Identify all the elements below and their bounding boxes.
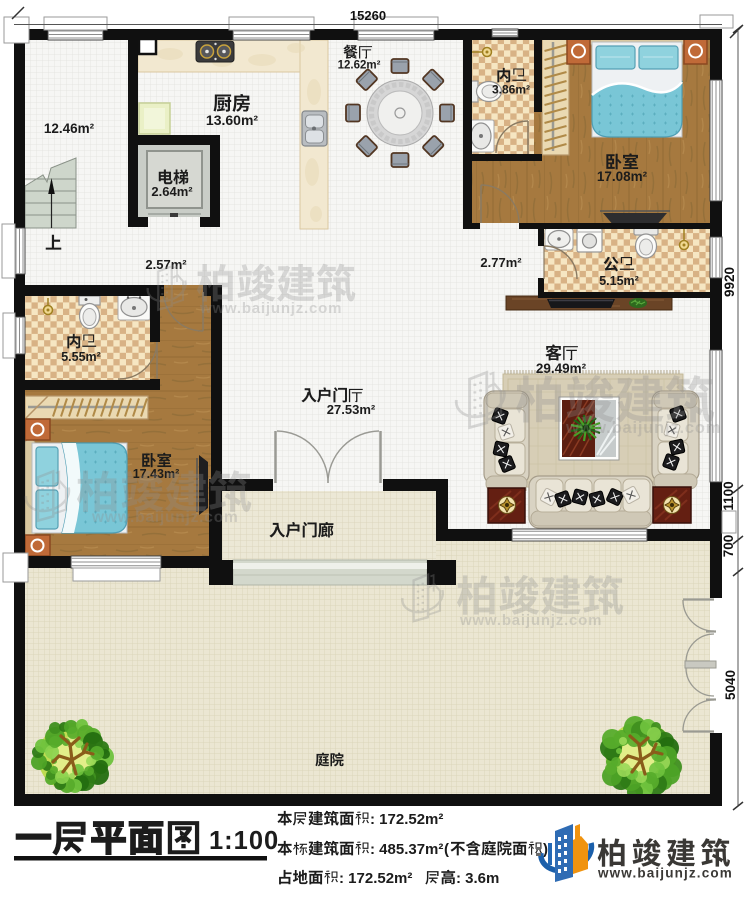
svg-text:2.77m²: 2.77m² — [480, 255, 522, 270]
svg-text:9920: 9920 — [722, 267, 737, 297]
svg-text:5040: 5040 — [723, 670, 738, 700]
svg-text:1:100: 1:100 — [209, 827, 279, 855]
svg-text:12.62m²: 12.62m² — [338, 60, 381, 72]
svg-text:: 485.37m²: : 485.37m² — [370, 841, 443, 858]
svg-text:(: ( — [444, 841, 449, 858]
svg-text:3.86m²: 3.86m² — [492, 83, 530, 97]
svg-text:5.15m²: 5.15m² — [599, 274, 639, 288]
svg-text:29.49m²: 29.49m² — [536, 361, 587, 376]
svg-text:www.baijunjz.com: www.baijunjz.com — [199, 300, 342, 317]
svg-text:2.64m²: 2.64m² — [151, 184, 193, 199]
svg-text:17.08m²: 17.08m² — [597, 169, 648, 184]
svg-text:www.baijunjz.com: www.baijunjz.com — [597, 866, 733, 881]
svg-text:27.53m²: 27.53m² — [327, 402, 376, 417]
svg-text:1100: 1100 — [721, 481, 736, 510]
svg-text:: 172.52m²: : 172.52m² — [370, 811, 443, 828]
svg-text:2.57m²: 2.57m² — [145, 257, 187, 272]
svg-text:: 3.6m: : 3.6m — [456, 870, 499, 887]
svg-text:12.46m²: 12.46m² — [44, 121, 95, 136]
svg-text:15260: 15260 — [350, 8, 386, 23]
svg-text:www.baijunjz.com: www.baijunjz.com — [91, 509, 239, 526]
svg-text:700: 700 — [721, 535, 736, 558]
svg-text:): ) — [543, 841, 548, 858]
svg-text:: 172.52m²: : 172.52m² — [339, 870, 412, 887]
svg-text:www.baijunjz.com: www.baijunjz.com — [565, 419, 721, 437]
svg-text:13.60m²: 13.60m² — [206, 112, 258, 128]
svg-text:www.baijunjz.com: www.baijunjz.com — [459, 612, 602, 629]
svg-text:5.55m²: 5.55m² — [61, 350, 101, 364]
